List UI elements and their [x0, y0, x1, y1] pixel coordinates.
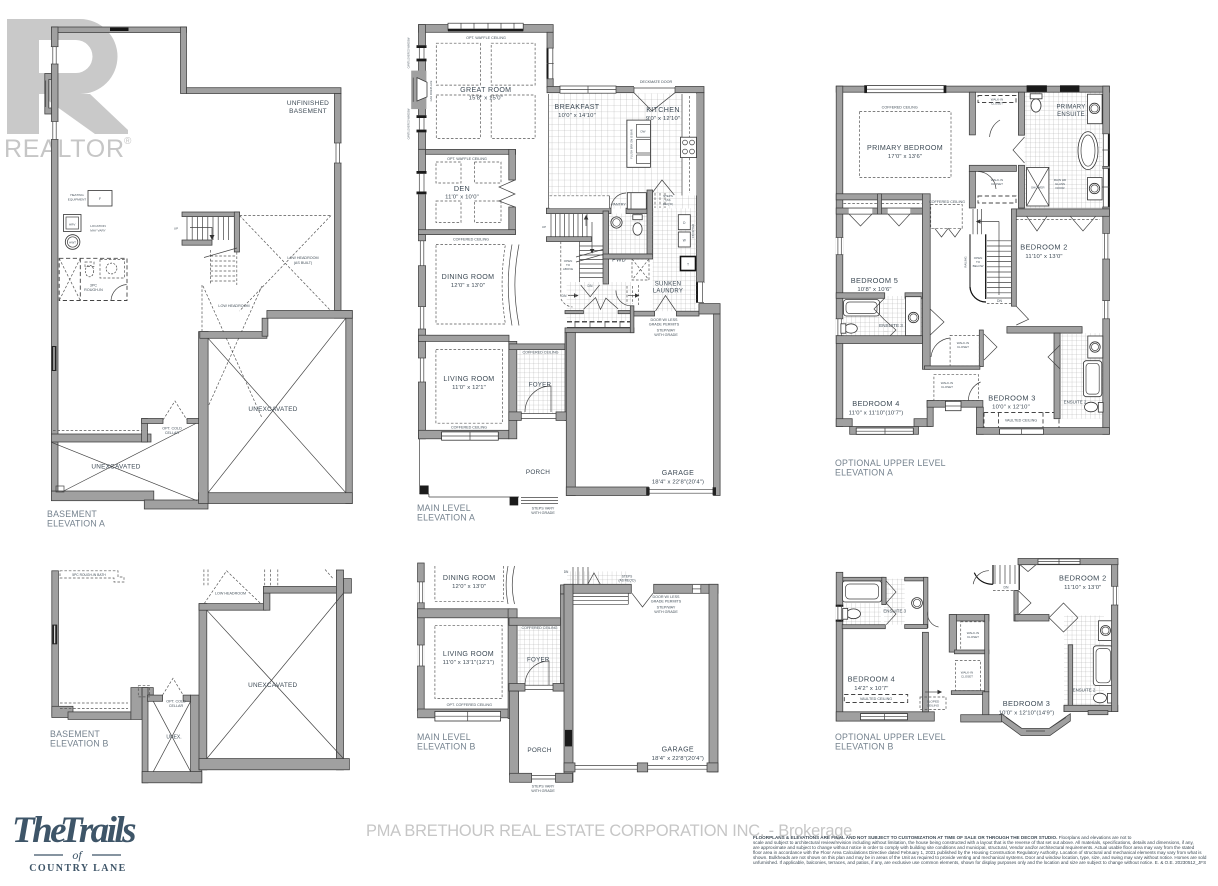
- svg-text:DN: DN: [997, 299, 1002, 303]
- svg-text:UNEXCAVATED: UNEXCAVATED: [248, 406, 297, 413]
- svg-text:PORCH: PORCH: [527, 747, 551, 754]
- svg-text:BEDROOM 5: BEDROOM 5: [851, 276, 899, 285]
- svg-text:MAY VARY: MAY VARY: [90, 228, 105, 232]
- svg-text:RAILING: RAILING: [964, 256, 968, 267]
- svg-text:BEDROOM 2: BEDROOM 2: [1020, 243, 1068, 252]
- svg-text:CLOSET: CLOSET: [991, 182, 1003, 186]
- svg-text:ENSUITE 2: ENSUITE 2: [1073, 688, 1096, 693]
- svg-text:WITH GRADE: WITH GRADE: [531, 511, 555, 515]
- svg-text:PORCH: PORCH: [526, 469, 550, 476]
- svg-text:BEDROOM 3: BEDROOM 3: [1003, 699, 1051, 708]
- svg-text:11'0" x 13'1"(12'1"): 11'0" x 13'1"(12'1"): [443, 660, 495, 666]
- svg-text:CLOSET: CLOSET: [967, 635, 979, 639]
- svg-text:HEATING: HEATING: [70, 193, 84, 197]
- svg-text:EQUIPMENT: EQUIPMENT: [68, 198, 87, 202]
- svg-text:GARAGE: GARAGE: [662, 746, 694, 754]
- svg-text:11'10" x 13'0": 11'10" x 13'0": [1064, 585, 1101, 591]
- svg-text:CANTILEVERED WINDOW: CANTILEVERED WINDOW: [408, 108, 411, 139]
- svg-text:18'4" x 22'8"(20'4"): 18'4" x 22'8"(20'4"): [652, 480, 704, 486]
- svg-text:DN: DN: [562, 294, 567, 298]
- svg-text:PANTRY: PANTRY: [611, 203, 626, 207]
- svg-text:WITH GRADE: WITH GRADE: [654, 610, 678, 614]
- svg-text:CB DRYER: CB DRYER: [691, 224, 695, 238]
- svg-text:VAULTED CEILING: VAULTED CEILING: [1005, 419, 1037, 423]
- svg-text:10'0" x 14'10": 10'0" x 14'10": [558, 113, 596, 119]
- svg-text:STEPS VARY: STEPS VARY: [532, 507, 555, 511]
- svg-text:Trails: Trails: [60, 810, 136, 851]
- svg-text:COFFERED CEILING: COFFERED CEILING: [929, 200, 965, 204]
- svg-text:GREAT ROOM: GREAT ROOM: [460, 86, 511, 94]
- svg-text:MAIN LEVEL: MAIN LEVEL: [417, 503, 471, 513]
- svg-text:T: T: [687, 263, 689, 267]
- svg-text:CLOSET: CLOSET: [941, 385, 953, 389]
- svg-text:CANTILEVERED WINDOW: CANTILEVERED WINDOW: [408, 37, 411, 68]
- svg-text:OPT. COLD: OPT. COLD: [162, 427, 182, 431]
- svg-text:CLOSET: CLOSET: [991, 101, 1003, 105]
- svg-text:CLOSET: CLOSET: [957, 345, 969, 349]
- svg-text:The: The: [12, 810, 66, 851]
- svg-text:FOYER: FOYER: [529, 382, 552, 389]
- svg-text:CEILING: CEILING: [927, 704, 940, 708]
- svg-text:11'0" x 10'0": 11'0" x 10'0": [445, 195, 479, 201]
- svg-text:OPT. COFFERED CEILING: OPT. COFFERED CEILING: [447, 703, 492, 707]
- svg-text:MAIN LEVEL: MAIN LEVEL: [417, 732, 471, 742]
- svg-text:COFFERED CEILING: COFFERED CEILING: [451, 426, 487, 430]
- svg-text:KITCHEN: KITCHEN: [646, 106, 680, 114]
- svg-text:CELLAR: CELLAR: [165, 431, 180, 435]
- svg-text:17'0" x 13'6": 17'0" x 13'6": [888, 154, 922, 160]
- svg-text:LIVING ROOM: LIVING ROOM: [443, 650, 494, 658]
- svg-text:DW: DW: [641, 130, 646, 134]
- svg-text:18'4" x 22'8"(20'4"): 18'4" x 22'8"(20'4"): [652, 756, 704, 762]
- svg-text:(AS REQ'D): (AS REQ'D): [618, 579, 635, 583]
- svg-text:COFFERED CEILING: COFFERED CEILING: [522, 351, 558, 355]
- svg-text:BASEMENT: BASEMENT: [289, 108, 327, 115]
- svg-text:COUNTRY LANE: COUNTRY LANE: [29, 863, 127, 874]
- svg-text:COFFERED CEILING: COFFERED CEILING: [453, 238, 489, 242]
- svg-text:5PC ROUGH-IN BATH: 5PC ROUGH-IN BATH: [72, 573, 106, 577]
- svg-text:LOW HEADROOM: LOW HEADROOM: [287, 256, 318, 260]
- svg-text:GRADE PERMITS: GRADE PERMITS: [649, 323, 680, 327]
- svg-text:BEDROOM 3: BEDROOM 3: [988, 394, 1036, 403]
- svg-text:W: W: [683, 239, 686, 243]
- svg-text:UNEXCAVATED: UNEXCAVATED: [248, 682, 297, 689]
- svg-text:SUNKEN: SUNKEN: [655, 282, 682, 288]
- svg-text:3PC: 3PC: [90, 284, 98, 288]
- svg-text:DN: DN: [1004, 586, 1009, 590]
- svg-text:DECKMATE DOOR: DECKMATE DOOR: [640, 80, 673, 84]
- svg-text:ENSUITE 2: ENSUITE 2: [1064, 400, 1087, 405]
- svg-text:12'0" x 13'0": 12'0" x 13'0": [452, 584, 486, 590]
- svg-text:OPTIONAL UPPER LEVEL: OPTIONAL UPPER LEVEL: [835, 732, 946, 742]
- svg-text:PRIMARY: PRIMARY: [1057, 105, 1086, 111]
- svg-text:15'8" x 15'0": 15'8" x 15'0": [469, 96, 503, 102]
- svg-text:UP: UP: [174, 227, 178, 231]
- svg-text:UP: UP: [542, 225, 546, 229]
- svg-text:DINING ROOM: DINING ROOM: [443, 574, 496, 582]
- svg-text:10'0" x 12'10": 10'0" x 12'10": [992, 405, 1030, 411]
- svg-text:LAUNDRY: LAUNDRY: [653, 289, 683, 295]
- svg-text:HWT: HWT: [69, 241, 76, 245]
- svg-text:UNEXCAVATED: UNEXCAVATED: [91, 464, 140, 471]
- svg-text:ABOVE: ABOVE: [563, 267, 573, 271]
- svg-text:CELLAR: CELLAR: [169, 704, 184, 708]
- svg-text:OPT. WAFFLE CEILING: OPT. WAFFLE CEILING: [466, 36, 506, 40]
- svg-text:STEP/WAY: STEP/WAY: [657, 606, 676, 610]
- svg-text:OPT. COLD: OPT. COLD: [166, 700, 186, 704]
- svg-text:DOOR W/ LESS: DOOR W/ LESS: [652, 595, 680, 599]
- svg-text:HRV: HRV: [69, 223, 75, 227]
- svg-text:DOOR: DOOR: [1056, 186, 1066, 190]
- svg-text:GRADE PERMITS: GRADE PERMITS: [651, 600, 682, 604]
- svg-text:9'0" x 12'10": 9'0" x 12'10": [646, 116, 680, 122]
- svg-text:OPTIONAL UPPER LEVEL: OPTIONAL UPPER LEVEL: [835, 458, 946, 468]
- svg-text:F: F: [99, 197, 101, 201]
- svg-text:BEDROOM 2: BEDROOM 2: [1059, 574, 1107, 583]
- svg-text:PRIMARY BEDROOM: PRIMARY BEDROOM: [867, 144, 943, 152]
- svg-text:12'0" x 13'0": 12'0" x 13'0": [451, 283, 485, 289]
- svg-text:unfurnished. If applicable, ba: unfurnished. If applicable, balconies, t…: [753, 860, 1206, 865]
- svg-text:14'2" x 10'7": 14'2" x 10'7": [854, 686, 888, 692]
- svg-text:WITH GRADE: WITH GRADE: [531, 789, 555, 793]
- svg-text:LIVING ROOM: LIVING ROOM: [443, 375, 494, 383]
- svg-text:LOW HEADROOM: LOW HEADROOM: [215, 592, 246, 596]
- svg-text:BELOW: BELOW: [973, 264, 984, 268]
- svg-text:ELEVATION B: ELEVATION B: [417, 742, 476, 752]
- svg-text:(AS BUILT): (AS BUILT): [294, 261, 313, 265]
- svg-text:REQ'D): REQ'D): [663, 202, 673, 206]
- svg-text:DEN: DEN: [454, 184, 470, 193]
- svg-text:WITH GRADE: WITH GRADE: [654, 333, 678, 337]
- svg-text:LOW HEADROOM: LOW HEADROOM: [218, 304, 249, 308]
- svg-text:COFFERED CEILING: COFFERED CEILING: [882, 105, 918, 109]
- svg-text:DINING ROOM: DINING ROOM: [442, 273, 495, 281]
- svg-text:FLUSH BRK ON IS BAR: FLUSH BRK ON IS BAR: [630, 129, 634, 158]
- svg-text:ELEVATION A: ELEVATION A: [417, 513, 475, 523]
- svg-text:BEDROOM 4: BEDROOM 4: [848, 675, 896, 684]
- svg-text:11'10" x 13'0": 11'10" x 13'0": [1025, 254, 1062, 260]
- svg-text:VAULTED CEILING: VAULTED CEILING: [860, 697, 892, 701]
- svg-text:GAS FIREPLACE: GAS FIREPLACE: [429, 80, 433, 101]
- svg-text:BASEMENT: BASEMENT: [47, 509, 97, 519]
- svg-text:BREAKFAST: BREAKFAST: [555, 103, 600, 111]
- svg-text:REALTOR: REALTOR: [4, 135, 124, 163]
- svg-text:10'8" x 10'6": 10'8" x 10'6": [857, 287, 891, 293]
- svg-text:ELEVATION A: ELEVATION A: [47, 519, 105, 529]
- svg-text:SHOWER: SHOWER: [1031, 185, 1045, 189]
- svg-text:CLOSET: CLOSET: [961, 675, 973, 679]
- svg-text:BASEMENT: BASEMENT: [50, 729, 100, 739]
- svg-text:11'0" x 12'1": 11'0" x 12'1": [452, 385, 486, 391]
- svg-text:UNEX.: UNEX.: [166, 735, 181, 741]
- svg-text:UNFINISHED: UNFINISHED: [287, 100, 329, 107]
- svg-text:GARAGE: GARAGE: [662, 469, 694, 477]
- svg-text:ENSUITE: ENSUITE: [1057, 112, 1085, 118]
- svg-text:11'0" x 11'10"(10'7"): 11'0" x 11'10"(10'7"): [849, 411, 904, 417]
- svg-text:OPT. WAFFLE CEILING: OPT. WAFFLE CEILING: [447, 157, 487, 161]
- svg-text:®: ®: [124, 136, 132, 147]
- svg-text:FOYER: FOYER: [527, 657, 550, 664]
- svg-text:ELEVATION B: ELEVATION B: [835, 742, 894, 752]
- svg-text:DOOR W/ LESS: DOOR W/ LESS: [650, 318, 678, 322]
- svg-text:ELEVATION B: ELEVATION B: [50, 739, 109, 749]
- svg-text:ROUGH-IN: ROUGH-IN: [84, 288, 103, 292]
- svg-text:STEP/WAY: STEP/WAY: [657, 329, 676, 333]
- svg-text:ELEVATION A: ELEVATION A: [835, 468, 893, 478]
- svg-text:BEDROOM 4: BEDROOM 4: [852, 399, 900, 408]
- svg-text:10'0" x 12'10"(14'9"): 10'0" x 12'10"(14'9"): [999, 711, 1055, 717]
